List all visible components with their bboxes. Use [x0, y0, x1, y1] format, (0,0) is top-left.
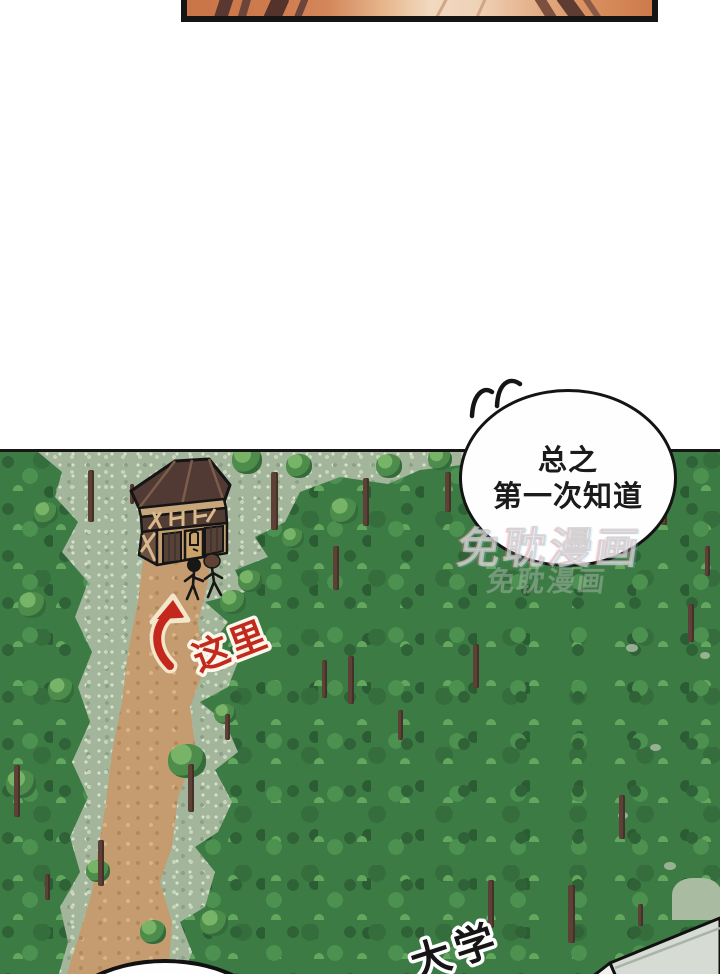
watermark-secondary: 免耽漫画: [484, 560, 610, 600]
tree: [286, 454, 312, 478]
tree-trunk: [98, 840, 104, 886]
tree-trunk: [348, 656, 354, 704]
tree-trunk: [14, 765, 20, 817]
tree: [282, 528, 304, 548]
tree: [34, 502, 58, 524]
tree: [140, 920, 166, 944]
forest-gap: [664, 862, 676, 870]
tree: [428, 449, 452, 470]
tree-trunk: [271, 472, 278, 530]
tree-trunk: [705, 546, 710, 576]
hair-strand: [581, 0, 611, 22]
hair-strand: [257, 0, 290, 22]
forest-gap: [626, 644, 638, 652]
forest-gap: [650, 744, 661, 751]
tree-trunk: [473, 644, 479, 688]
tree-trunk: [45, 874, 50, 900]
squiggle-marks-icon: [464, 376, 530, 422]
tree: [330, 498, 358, 524]
tree-trunk: [398, 710, 403, 740]
skin-line: [469, 0, 488, 22]
tree: [200, 910, 228, 936]
here-label-text: 这里: [187, 614, 275, 680]
tree-trunk: [363, 478, 369, 526]
tree-trunk: [88, 470, 94, 522]
speech-line-1: 总之: [538, 442, 598, 478]
tree: [238, 570, 262, 592]
tree: [48, 678, 74, 702]
tree: [376, 454, 402, 478]
tree: [6, 770, 36, 798]
hair-strand: [288, 0, 309, 22]
speech-line-2: 第一次知道: [493, 478, 643, 514]
tree-trunk: [619, 795, 625, 839]
tree: [168, 744, 206, 778]
university-label: 大学: [392, 910, 522, 974]
here-label: 这里: [176, 596, 286, 676]
tree-trunk: [225, 714, 230, 740]
university-label-text: 大学: [405, 916, 507, 974]
previous-panel-sliver: [181, 0, 658, 22]
building-roof-icon: [588, 906, 720, 974]
tree: [18, 592, 46, 618]
tree-trunk: [568, 885, 575, 943]
skin-line: [428, 0, 449, 22]
hair-strand: [233, 0, 252, 22]
tree-trunk: [188, 764, 194, 812]
tree-trunk: [445, 472, 451, 512]
hair-strand: [209, 0, 234, 22]
tree-trunk: [322, 660, 327, 698]
tree-trunk: [688, 604, 694, 642]
tree-trunk: [333, 546, 339, 590]
tree: [232, 449, 262, 474]
forest-gap: [700, 652, 710, 659]
